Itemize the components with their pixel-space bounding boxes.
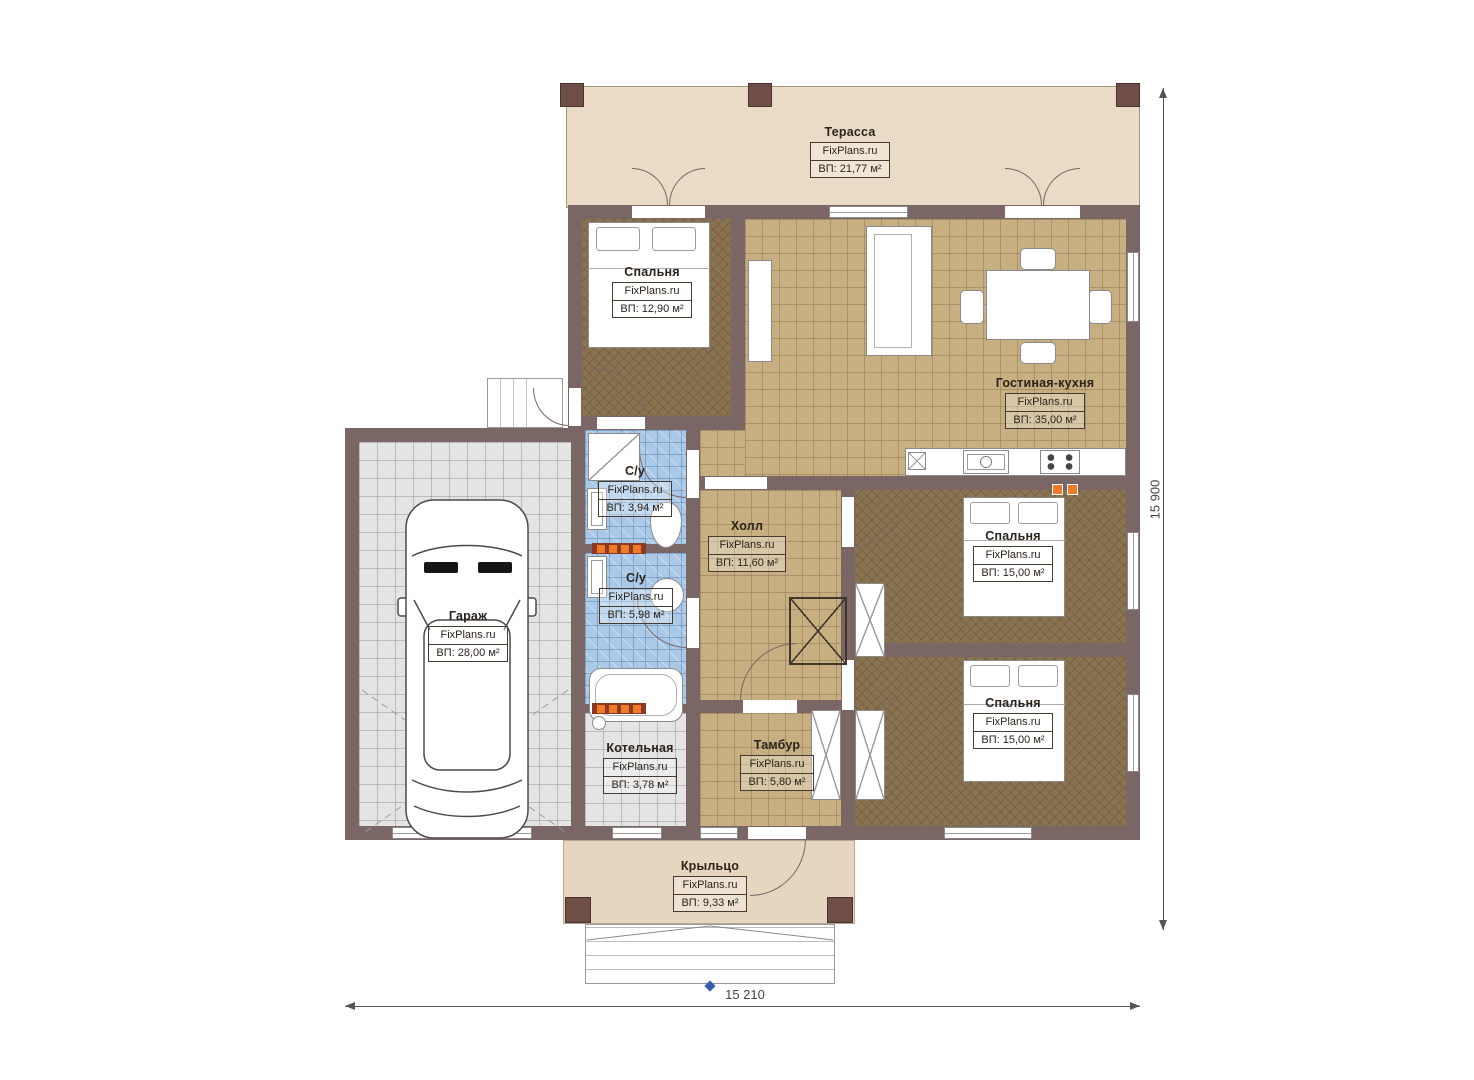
watermark: FixPlans.ru <box>974 547 1051 564</box>
room-area: ВП: 5,98 м² <box>600 607 671 623</box>
watermark: FixPlans.ru <box>1006 394 1083 411</box>
room-name: Холл <box>692 518 802 534</box>
room-name: Спальня <box>958 528 1068 544</box>
watermark: FixPlans.ru <box>811 143 888 160</box>
room-info-box: FixPlans.ru ВП: 35,00 м² <box>1005 393 1084 429</box>
room-info-box: FixPlans.ru ВП: 28,00 м² <box>428 626 507 662</box>
room-label-bedroom-1: Спальня FixPlans.ru ВП: 12,90 м² <box>597 264 707 318</box>
dimension-right-value: 15 900 <box>1148 460 1163 540</box>
room-info-box: FixPlans.ru ВП: 3,78 м² <box>603 758 676 794</box>
room-label-living-kitchen: Гостиная-кухня FixPlans.ru ВП: 35,00 м² <box>985 375 1105 429</box>
dimension-bottom-value: 15 210 <box>695 987 795 1002</box>
room-area: ВП: 11,60 м² <box>709 555 785 571</box>
room-info-box: FixPlans.ru ВП: 11,60 м² <box>708 536 786 572</box>
room-label-bedroom-3: Спальня FixPlans.ru ВП: 15,00 м² <box>958 695 1068 749</box>
room-info-box: FixPlans.ru ВП: 15,00 м² <box>973 546 1052 582</box>
room-name: Котельная <box>585 740 695 756</box>
room-label-terrace: Терасса FixPlans.ru ВП: 21,77 м² <box>795 124 905 178</box>
dimension-line-bottom <box>345 1006 1140 1007</box>
room-area: ВП: 21,77 м² <box>811 161 888 177</box>
room-name: Гараж <box>413 608 523 624</box>
room-name: Спальня <box>597 264 707 280</box>
room-info-box: FixPlans.ru ВП: 21,77 м² <box>810 142 889 178</box>
dim-arrow-down <box>1159 920 1167 930</box>
dim-arrow-left <box>345 1002 355 1010</box>
floor-plan: Терасса FixPlans.ru ВП: 21,77 м² Спальня… <box>0 0 1474 1080</box>
room-info-box: FixPlans.ru ВП: 5,98 м² <box>599 588 672 624</box>
room-area: ВП: 12,90 м² <box>613 301 690 317</box>
room-info-box: FixPlans.ru ВП: 5,80 м² <box>740 755 813 791</box>
dim-arrow-right <box>1130 1002 1140 1010</box>
room-area: ВП: 3,94 м² <box>599 500 670 516</box>
watermark: FixPlans.ru <box>613 283 690 300</box>
room-label-garage: Гараж FixPlans.ru ВП: 28,00 м² <box>413 608 523 662</box>
room-area: ВП: 5,80 м² <box>741 774 812 790</box>
room-area: ВП: 9,33 м² <box>674 895 745 911</box>
room-label-bedroom-2: Спальня FixPlans.ru ВП: 15,00 м² <box>958 528 1068 582</box>
room-area: ВП: 15,00 м² <box>974 565 1051 581</box>
room-name: С/у <box>580 463 690 479</box>
dim-arrow-up <box>1159 88 1167 98</box>
room-label-bathroom-2: С/у FixPlans.ru ВП: 5,98 м² <box>581 570 691 624</box>
room-name: Терасса <box>795 124 905 140</box>
room-info-box: FixPlans.ru ВП: 9,33 м² <box>673 876 746 912</box>
room-label-bathroom-1: С/у FixPlans.ru ВП: 3,94 м² <box>580 463 690 517</box>
steps-outline <box>587 926 833 940</box>
room-label-vestibule: Тамбур FixPlans.ru ВП: 5,80 м² <box>722 737 832 791</box>
room-area: ВП: 28,00 м² <box>429 645 506 661</box>
room-label-hall: Холл FixPlans.ru ВП: 11,60 м² <box>692 518 802 572</box>
watermark: FixPlans.ru <box>741 756 812 773</box>
room-label-porch: Крыльцо FixPlans.ru ВП: 9,33 м² <box>655 858 765 912</box>
watermark: FixPlans.ru <box>599 482 670 499</box>
watermark: FixPlans.ru <box>674 877 745 894</box>
room-name: Тамбур <box>722 737 832 753</box>
room-area: ВП: 15,00 м² <box>974 732 1051 748</box>
room-name: Крыльцо <box>655 858 765 874</box>
watermark: FixPlans.ru <box>709 537 785 554</box>
room-area: ВП: 35,00 м² <box>1006 412 1083 428</box>
watermark: FixPlans.ru <box>429 627 506 644</box>
room-name: Спальня <box>958 695 1068 711</box>
room-name: Гостиная-кухня <box>985 375 1105 391</box>
dimension-line-right <box>1163 88 1164 930</box>
room-info-box: FixPlans.ru ВП: 12,90 м² <box>612 282 691 318</box>
room-area: ВП: 3,78 м² <box>604 777 675 793</box>
watermark: FixPlans.ru <box>604 759 675 776</box>
room-label-boiler-room: Котельная FixPlans.ru ВП: 3,78 м² <box>585 740 695 794</box>
car-top-view <box>398 500 536 838</box>
room-name: С/у <box>581 570 691 586</box>
room-info-box: FixPlans.ru ВП: 15,00 м² <box>973 713 1052 749</box>
room-info-box: FixPlans.ru ВП: 3,94 м² <box>598 481 671 517</box>
watermark: FixPlans.ru <box>974 714 1051 731</box>
watermark: FixPlans.ru <box>600 589 671 606</box>
